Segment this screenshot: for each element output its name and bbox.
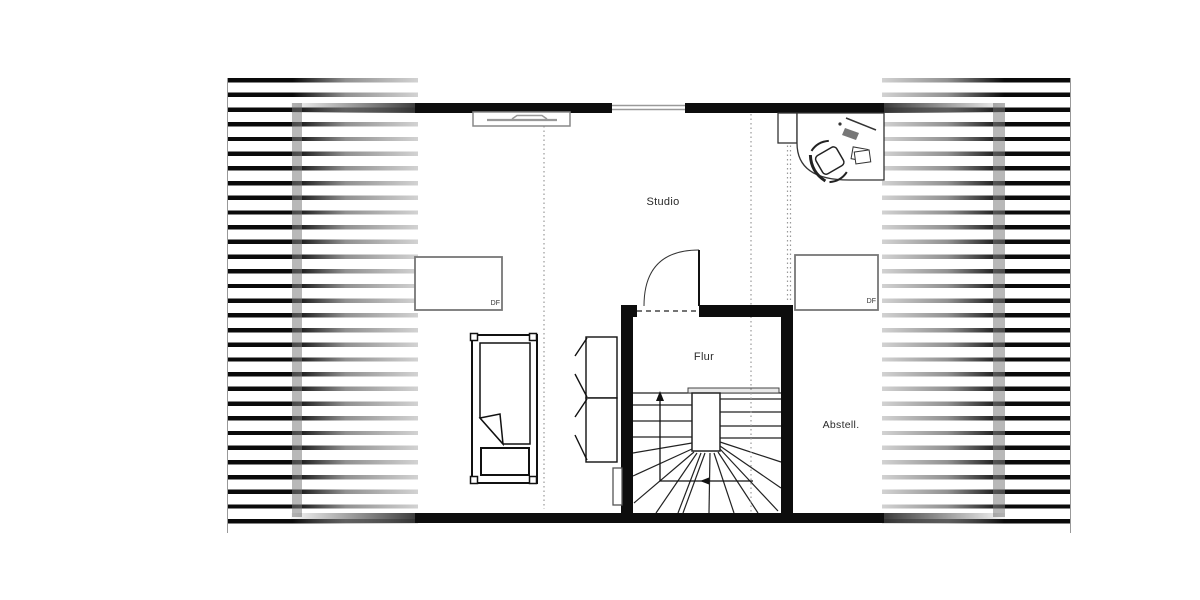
floor-plan-canvas: Studio Flur Abstell. DF DF	[0, 0, 1200, 600]
wall-bottom	[415, 513, 884, 523]
bed-post	[530, 477, 537, 484]
bed-pillow	[481, 448, 529, 475]
wall-flur-top-a	[621, 305, 637, 317]
bed	[471, 334, 538, 484]
desk	[778, 113, 884, 188]
sideboard-shelf	[473, 112, 570, 126]
window-top	[612, 102, 685, 114]
desk-dot	[838, 122, 841, 125]
stair-walkline-arrow	[700, 478, 709, 485]
wall-flur-top-b	[699, 305, 781, 317]
roof-window-label-right: DF	[836, 298, 876, 305]
bed-post	[530, 334, 537, 341]
radiator	[613, 468, 622, 505]
bed-post	[471, 334, 478, 341]
room-label-studio: Studio	[628, 196, 698, 208]
door-swing-arc	[644, 250, 699, 306]
desk-cabinet	[778, 113, 797, 143]
staircase	[633, 388, 781, 513]
wall-flur-right	[781, 305, 793, 523]
room-label-abstell: Abstell.	[806, 419, 876, 431]
wardrobe	[575, 337, 617, 462]
roof-window-label-left: DF	[460, 300, 500, 307]
bed-post	[471, 477, 478, 484]
flur-door	[637, 250, 699, 311]
plan-linework	[0, 0, 1200, 600]
room-label-flur: Flur	[674, 351, 734, 363]
wall-top-right-segment	[685, 103, 884, 113]
wall-flur-left	[621, 305, 633, 523]
